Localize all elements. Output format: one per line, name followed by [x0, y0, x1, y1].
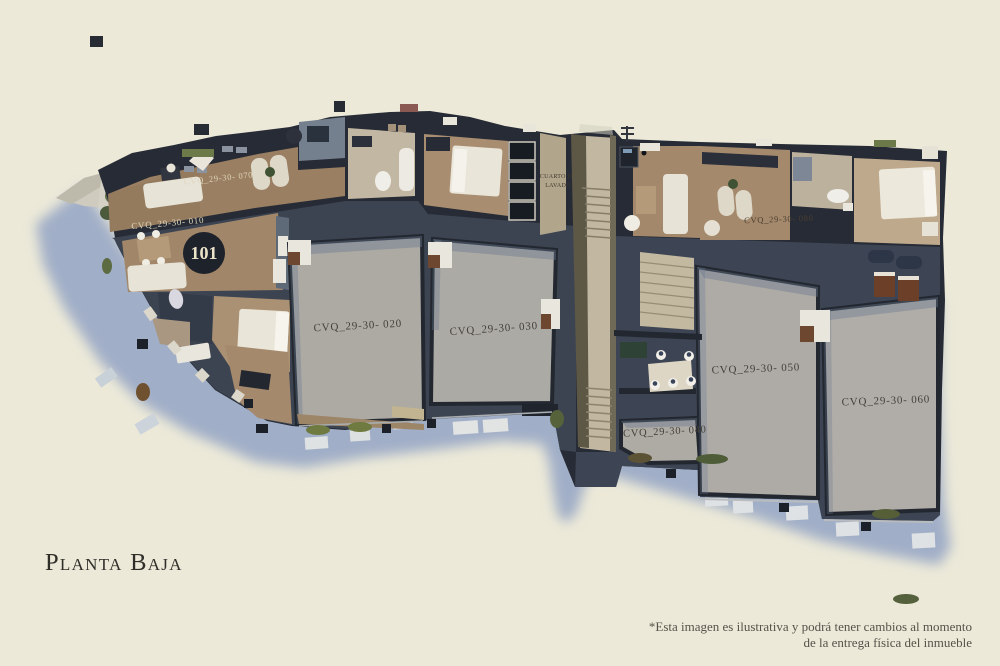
svg-text:LAVADO: LAVADO [545, 183, 571, 189]
svg-text:CUARTO DE: CUARTO DE [540, 174, 576, 180]
svg-text:de la entrega física del inmue: de la entrega física del inmueble [803, 635, 972, 650]
svg-text:*Esta imagen es ilustrativa y: *Esta imagen es ilustrativa y podrá tene… [649, 619, 972, 634]
svg-text:Planta Baja: Planta Baja [45, 549, 183, 576]
svg-text:101: 101 [191, 243, 218, 263]
